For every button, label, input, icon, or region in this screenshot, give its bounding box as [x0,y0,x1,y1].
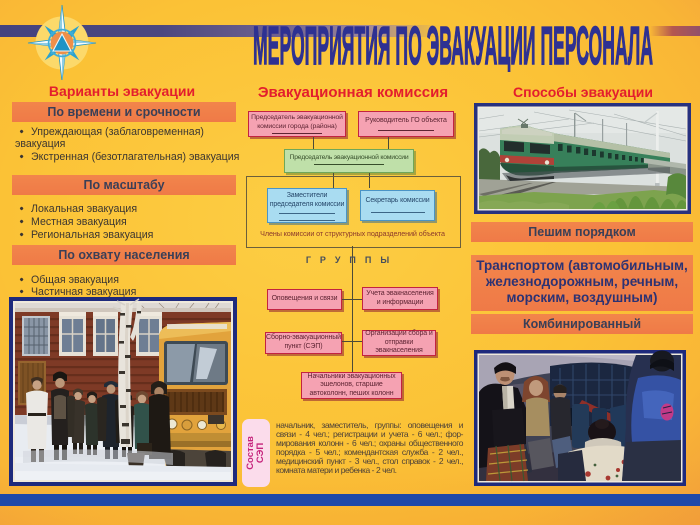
svg-text:МЕРОПРИЯТИЯ ПО ЭВАКУАЦИИ ПЕРСО: МЕРОПРИЯТИЯ ПО ЭВАКУАЦИИ ПЕРСОНАЛА [253,20,653,72]
